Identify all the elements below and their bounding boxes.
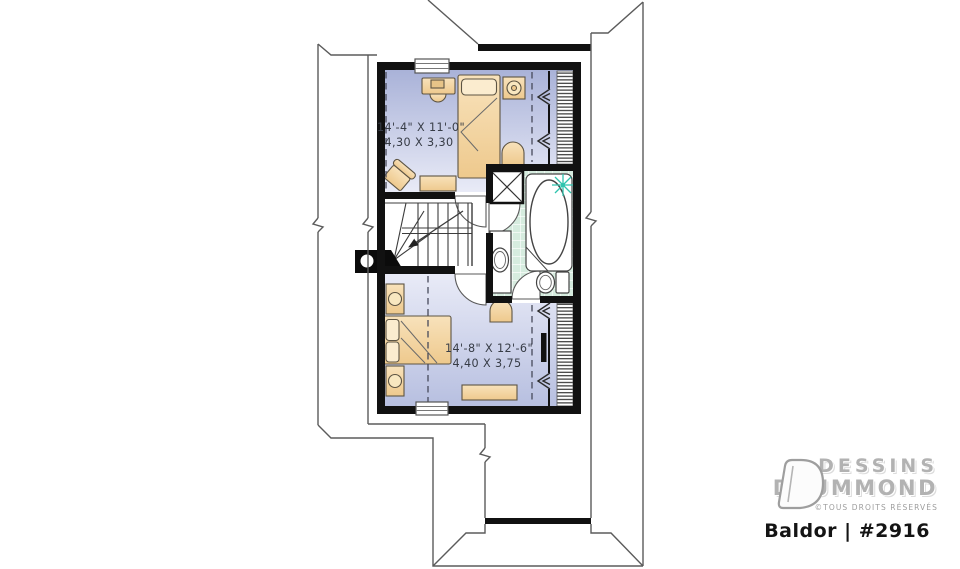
break-line-icon (480, 448, 490, 462)
eave-line-right-inner (591, 33, 643, 566)
drummond-d-icon (773, 456, 825, 512)
stair-direction-arrow-icon (409, 211, 463, 247)
floor-plan-page: 14'-4" X 11'-0" 4,30 X 3,30 14'-8" X 12'… (0, 0, 960, 569)
exterior-wall-top-dormer (478, 44, 591, 51)
window-icon (416, 402, 448, 415)
wall (540, 296, 573, 303)
room-dimension-metric: 4,30 X 3,30 (385, 136, 454, 149)
attic-storage-hatch-lower (557, 303, 573, 406)
roof-slope-line (433, 524, 485, 566)
eave-line (318, 44, 377, 55)
lamp-icon (389, 293, 402, 306)
wall (573, 62, 581, 414)
armchair-u-icon (502, 142, 524, 165)
dresser-icon (462, 385, 517, 400)
attic-storage-hatch-upper (557, 71, 573, 164)
wall (486, 233, 493, 303)
wall (377, 266, 455, 274)
newel-post-icon (361, 255, 374, 268)
pillow-icon (462, 79, 497, 95)
window-icon (415, 59, 449, 73)
break-line-icon (363, 218, 373, 232)
wall (449, 62, 581, 70)
room-dimension-imperial: 14'-4" X 11'-0" (377, 121, 465, 134)
plan-name-label: Baldor | #2916 (764, 520, 930, 542)
wall (448, 406, 581, 414)
toilet-tank (556, 272, 569, 293)
room-dimension-metric: 4,40 X 3,75 (453, 357, 522, 370)
lamp-icon (389, 375, 402, 388)
wall (486, 296, 512, 303)
wall (377, 62, 385, 414)
pillow-icon (386, 342, 399, 362)
pillow-icon (386, 320, 399, 341)
plant-icon (552, 174, 574, 196)
knee-wall-post (541, 333, 547, 362)
wall (486, 164, 581, 171)
eave-line-bottom (318, 425, 643, 566)
desk-monitor-icon (431, 80, 444, 88)
wall (486, 164, 493, 203)
staircase (385, 203, 472, 266)
roof-slope-line (428, 0, 478, 44)
break-line-icon (586, 212, 596, 226)
wall (377, 406, 416, 414)
roof-slope-line (591, 2, 643, 33)
winder-treads (394, 203, 430, 260)
door-arc-bedroom-upper (455, 196, 486, 227)
armchair-u-icon (490, 300, 512, 322)
dresser-icon (420, 176, 456, 191)
room-dimension-imperial: 14'-8" X 12'-6" (445, 342, 533, 355)
wall (377, 192, 455, 199)
break-line-icon (313, 218, 323, 232)
exterior-wall-bottom-dormer (485, 518, 591, 524)
bathtub-icon (530, 180, 568, 264)
brand-logo: DESSINS DRUMMOND ©TOUS DROITS RÉSERVÉS (773, 456, 938, 512)
lamp-center-icon (512, 86, 517, 91)
